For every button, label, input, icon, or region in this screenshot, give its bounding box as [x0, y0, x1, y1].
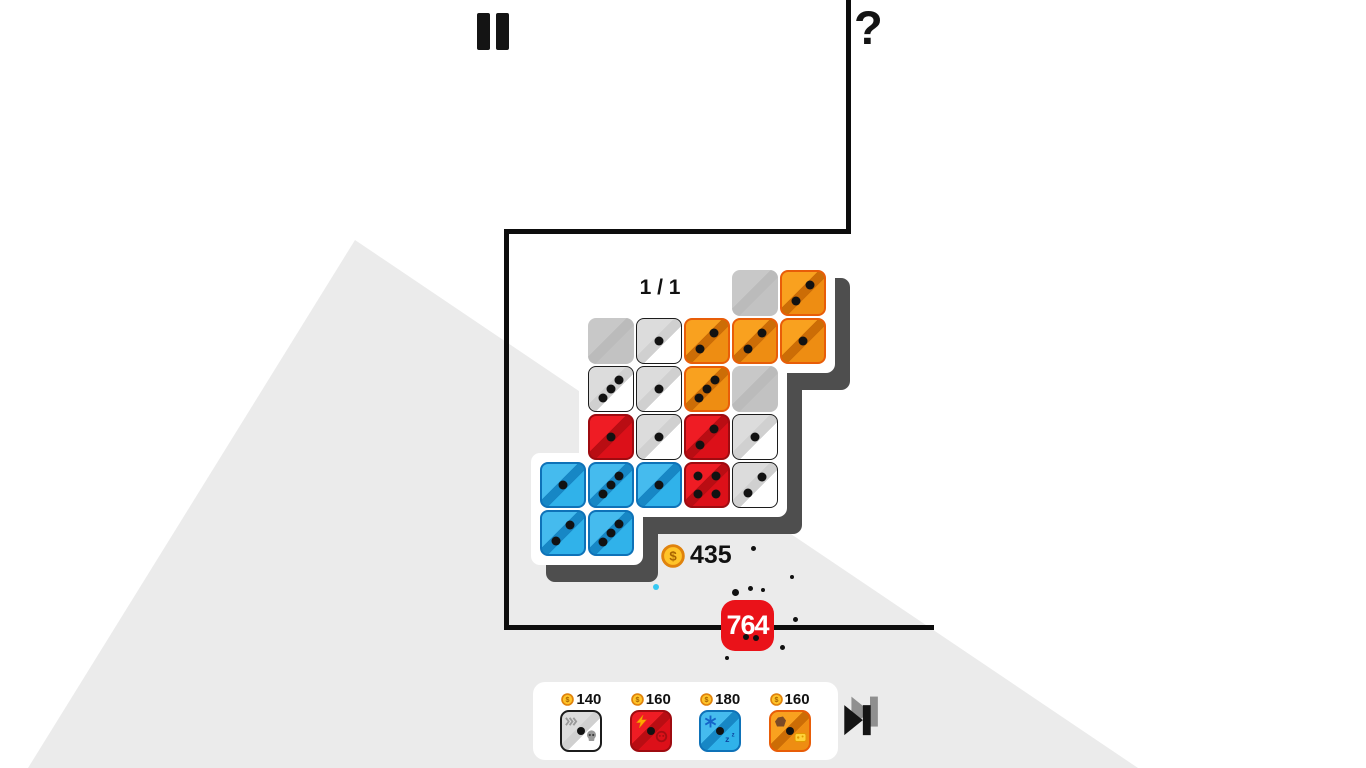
pip — [710, 329, 719, 338]
svg-text:z: z — [725, 733, 730, 742]
shop-item-price-row: $140 — [561, 691, 601, 708]
particle-dot — [748, 586, 753, 591]
shop-items: $140 $160 $180zz $160 — [533, 691, 838, 752]
pip — [695, 440, 704, 449]
particle-dot — [725, 656, 729, 660]
board-tile-white-1[interactable] — [636, 318, 682, 364]
pip — [743, 344, 752, 353]
shop-die-red — [630, 710, 672, 752]
shop-item-blue-die[interactable]: $180zz — [699, 691, 741, 752]
sleep-icon: zz — [724, 730, 737, 748]
pause-icon — [496, 13, 509, 50]
boundary-line-left-vertical — [504, 229, 509, 630]
shop-item-white-die[interactable]: $140 — [560, 691, 602, 752]
shop-die-blue: zz — [699, 710, 741, 752]
board-tile-orange-2[interactable] — [684, 318, 730, 364]
pip — [695, 393, 704, 402]
svg-text:$: $ — [635, 696, 639, 704]
particle-dot — [753, 635, 759, 641]
coin-icon: $ — [561, 693, 574, 706]
pip — [655, 337, 664, 346]
pip — [614, 520, 623, 529]
shop-item-price: 160 — [646, 691, 671, 708]
shop-item-red-die[interactable]: $160 — [630, 691, 672, 752]
particle-dot — [780, 645, 785, 650]
shop-item-price: 180 — [715, 691, 740, 708]
pip — [566, 521, 575, 530]
shop-item-price-row: $160 — [631, 691, 671, 708]
board-tile-blue-1[interactable] — [540, 462, 586, 508]
pip — [607, 433, 616, 442]
board-tile-orange-2[interactable] — [780, 270, 826, 316]
pip — [693, 471, 702, 480]
pip — [559, 481, 568, 490]
skip-button[interactable] — [840, 695, 880, 741]
pip — [751, 433, 760, 442]
board-tile-red-4[interactable] — [684, 462, 730, 508]
boundary-line-top-horizontal — [504, 229, 851, 234]
board-tile-red-2[interactable] — [684, 414, 730, 460]
particle-dot — [761, 588, 765, 592]
board-tile-gray-0[interactable] — [732, 366, 778, 412]
pip — [799, 337, 808, 346]
board-background-layer — [0, 0, 1366, 768]
svg-text:$: $ — [669, 548, 677, 563]
pip — [695, 344, 704, 353]
board-tile-gray-0[interactable] — [732, 270, 778, 316]
damage-badge: 764 — [721, 600, 774, 651]
particle-dot — [790, 575, 794, 579]
pip — [599, 537, 608, 546]
shop-item-price: 160 — [785, 691, 810, 708]
coin-icon: $ — [770, 693, 783, 706]
pip — [607, 385, 616, 394]
shop-item-orange-die[interactable]: $160 — [769, 691, 811, 752]
pip — [758, 472, 767, 481]
shop-bar: $140 $160 $180zz $160 — [533, 682, 838, 760]
board-tile-gray-0[interactable] — [588, 318, 634, 364]
pip — [791, 296, 800, 305]
svg-text:$: $ — [705, 696, 709, 704]
pip — [615, 375, 624, 384]
pip — [786, 727, 794, 735]
pip — [806, 281, 815, 290]
skull-icon — [585, 730, 598, 748]
board-tile-blue-3[interactable] — [588, 510, 634, 556]
svg-text:z: z — [732, 732, 735, 738]
board-tile-white-1[interactable] — [636, 414, 682, 460]
board-tile-blue-1[interactable] — [636, 462, 682, 508]
wave-progress-label: 1 / 1 — [600, 276, 720, 300]
pip — [577, 727, 585, 735]
pip — [655, 385, 664, 394]
shop-item-price: 140 — [576, 691, 601, 708]
pip — [710, 425, 719, 434]
pip — [743, 489, 752, 498]
coin-icon: $ — [661, 544, 685, 568]
pip — [716, 727, 724, 735]
board-tile-blue-3[interactable] — [588, 462, 634, 508]
pip — [599, 489, 608, 498]
board-tile-white-1[interactable] — [732, 414, 778, 460]
board-tile-white-2[interactable] — [732, 462, 778, 508]
shop-item-price-row: $160 — [770, 691, 810, 708]
pip — [710, 376, 719, 385]
boundary-line-bottom-horizontal — [504, 625, 934, 630]
pip — [607, 529, 616, 538]
svg-text:$: $ — [774, 696, 778, 704]
board-tile-white-1[interactable] — [636, 366, 682, 412]
board-tile-orange-2[interactable] — [732, 318, 778, 364]
board-tile-white-3[interactable] — [588, 366, 634, 412]
particle-dot — [743, 634, 749, 640]
pip — [647, 727, 655, 735]
coin-amount: 435 — [690, 541, 732, 570]
board-tile-red-1[interactable] — [588, 414, 634, 460]
pause-icon — [477, 13, 490, 50]
svg-text:$: $ — [566, 696, 570, 704]
coin-icon: $ — [700, 693, 713, 706]
board-tile-orange-3[interactable] — [684, 366, 730, 412]
coin-counter: $ 435 — [661, 541, 732, 570]
help-button[interactable]: ? — [854, 2, 883, 54]
cheese-icon — [794, 730, 807, 748]
pip — [655, 433, 664, 442]
pip — [598, 394, 607, 403]
shop-item-price-row: $180 — [700, 691, 740, 708]
boundary-line-top-vertical — [846, 0, 851, 234]
pause-button[interactable] — [477, 13, 513, 51]
pip — [693, 490, 702, 499]
board-tile-blue-2[interactable] — [540, 510, 586, 556]
pip — [551, 536, 560, 545]
pip — [655, 481, 664, 490]
coin-icon: $ — [631, 693, 644, 706]
pip — [758, 329, 767, 338]
board-tile-orange-1[interactable] — [780, 318, 826, 364]
shop-die-white — [560, 710, 602, 752]
pip — [607, 481, 616, 490]
particle-dot — [793, 617, 798, 622]
dizzy-icon — [655, 730, 668, 748]
pip — [712, 490, 721, 499]
pip — [712, 471, 721, 480]
pip — [703, 385, 712, 394]
particle-dot — [751, 546, 756, 551]
pip — [614, 472, 623, 481]
particle-dot — [732, 589, 739, 596]
shop-die-orange — [769, 710, 811, 752]
